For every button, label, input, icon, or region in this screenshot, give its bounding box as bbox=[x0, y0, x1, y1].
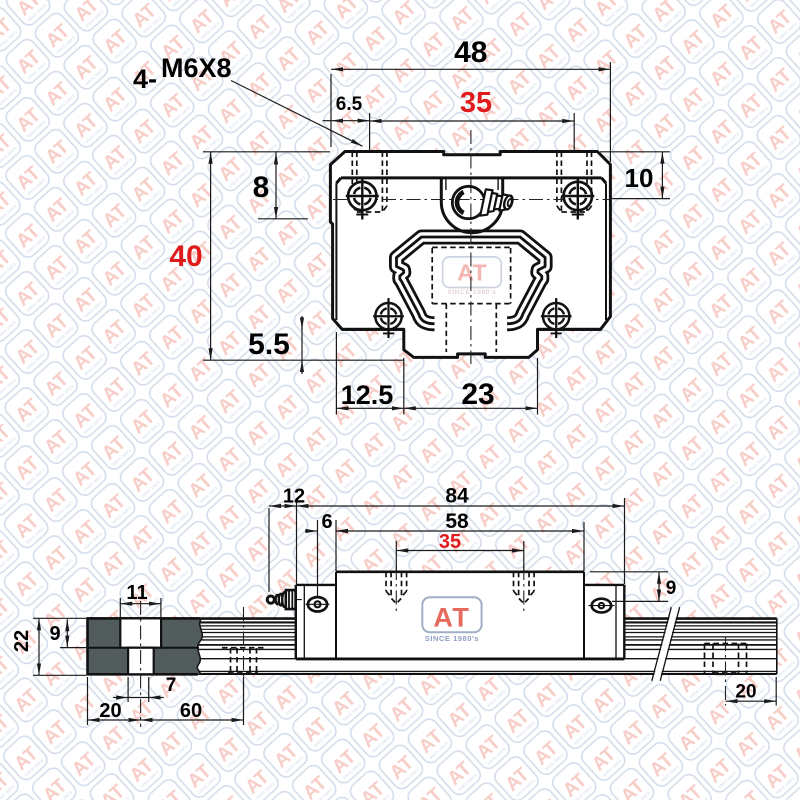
svg-text:7: 7 bbox=[166, 675, 177, 696]
svg-text:35: 35 bbox=[439, 531, 461, 553]
svg-text:40: 40 bbox=[169, 240, 202, 273]
svg-text:SINCE 1980's: SINCE 1980's bbox=[447, 289, 496, 296]
svg-text:20: 20 bbox=[735, 682, 756, 703]
svg-text:12.5: 12.5 bbox=[341, 380, 394, 410]
svg-text:9: 9 bbox=[666, 578, 677, 599]
svg-text:48: 48 bbox=[454, 36, 487, 69]
svg-text:M6X8: M6X8 bbox=[161, 53, 232, 83]
svg-text:AT: AT bbox=[457, 260, 487, 286]
svg-text:35: 35 bbox=[460, 87, 492, 119]
svg-text:SINCE 1980's: SINCE 1980's bbox=[425, 634, 479, 643]
svg-text:23: 23 bbox=[461, 378, 494, 411]
svg-text:84: 84 bbox=[445, 485, 469, 508]
svg-text:8: 8 bbox=[253, 171, 270, 204]
svg-text:10: 10 bbox=[625, 163, 654, 193]
svg-text:AT: AT bbox=[433, 603, 470, 633]
svg-text:9: 9 bbox=[49, 623, 60, 645]
svg-text:4-: 4- bbox=[133, 64, 157, 94]
svg-text:11: 11 bbox=[126, 582, 147, 604]
svg-text:5.5: 5.5 bbox=[248, 328, 290, 361]
svg-text:58: 58 bbox=[445, 510, 469, 533]
svg-text:6: 6 bbox=[321, 511, 332, 533]
svg-text:6.5: 6.5 bbox=[336, 94, 363, 115]
svg-text:12: 12 bbox=[283, 486, 305, 508]
svg-text:60: 60 bbox=[180, 700, 202, 722]
svg-text:22: 22 bbox=[11, 630, 33, 652]
svg-text:20: 20 bbox=[99, 700, 121, 722]
